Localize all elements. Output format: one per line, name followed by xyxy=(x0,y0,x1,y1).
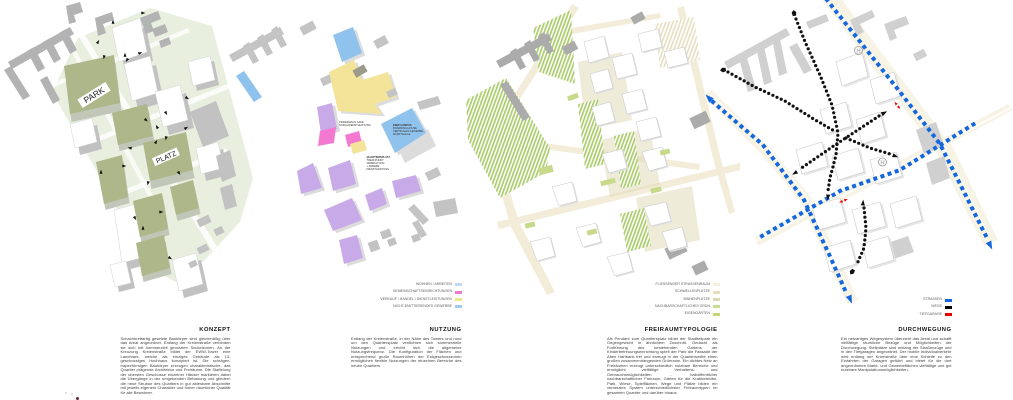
svg-text:H: H xyxy=(880,161,884,167)
svg-text:H: H xyxy=(856,49,860,55)
